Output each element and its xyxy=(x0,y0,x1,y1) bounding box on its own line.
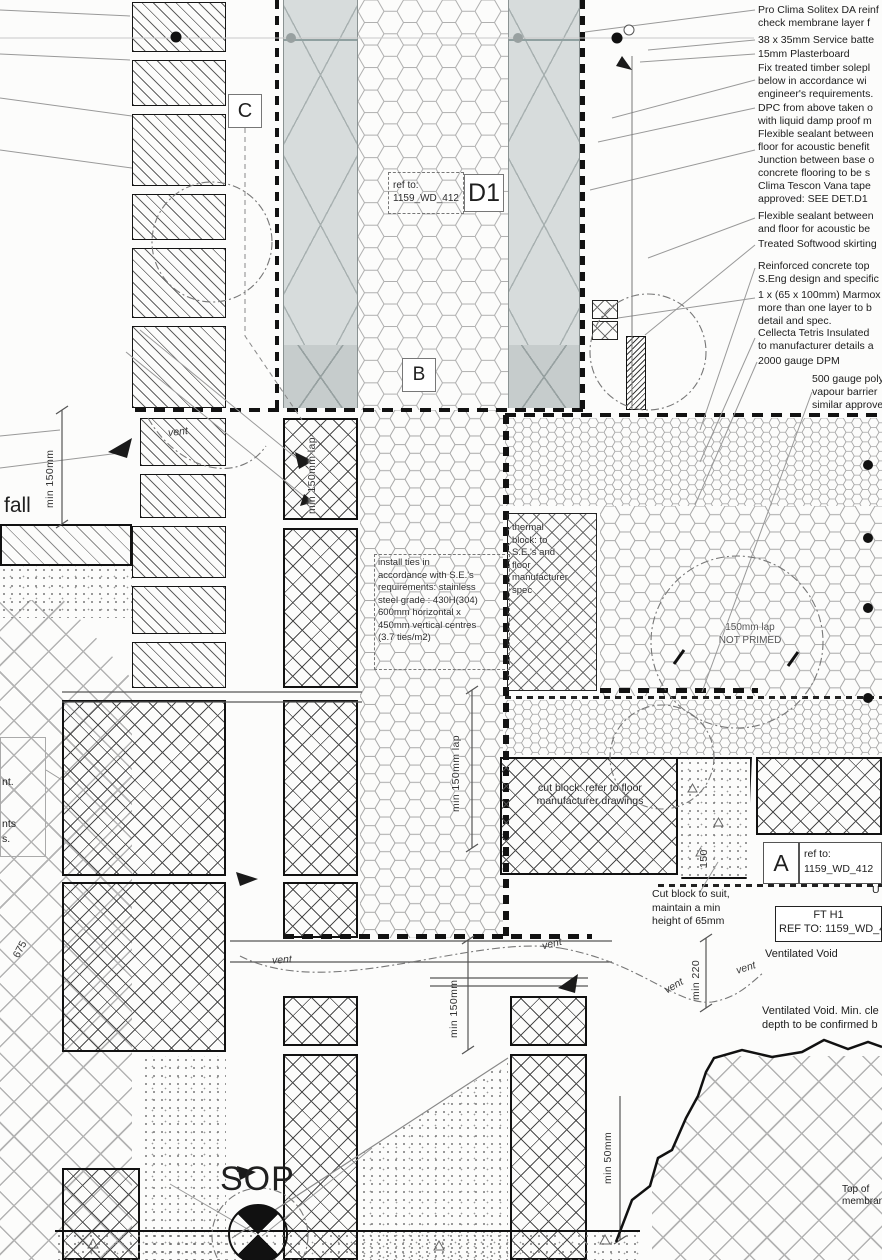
cut-block-note: cut block: refer to floor manufacturer d… xyxy=(508,780,672,810)
brick-course xyxy=(132,526,226,578)
brick-course xyxy=(132,114,226,186)
install-ties-note: install ties in accordance with S.E.'s r… xyxy=(378,557,508,645)
brick-course xyxy=(132,2,226,52)
label-a-text: A xyxy=(773,850,788,877)
annotation-battens: 38 x 35mm Service batte xyxy=(758,34,882,47)
inner-leaf-block xyxy=(283,528,358,688)
floor-beads-hex xyxy=(600,506,882,696)
vent-label: vent xyxy=(735,959,758,977)
label-c-text: C xyxy=(238,100,252,123)
dim-pad-150: 150 xyxy=(698,832,710,868)
detail-label-d1: D1 xyxy=(464,174,504,212)
membrane-dashed-left xyxy=(275,0,279,410)
annotation-marmox: 1 x (65 x 100mm) Marmox more than one la… xyxy=(758,289,882,328)
detail-label-a: A xyxy=(763,842,799,884)
left-note-fragment: nts xyxy=(2,818,32,831)
vent-label: vent xyxy=(167,425,188,439)
brick-course xyxy=(132,248,226,318)
pad-level-dashed xyxy=(658,884,882,887)
sop-label: SOP xyxy=(220,1160,295,1199)
ventilated-void-min-note: Ventilated Void. Min. cle depth to be co… xyxy=(762,1004,882,1032)
dim-min-220: min 220 xyxy=(690,938,702,1000)
subsoil-hatch-right xyxy=(652,1056,882,1260)
vent-label: vent xyxy=(662,976,685,996)
ft-h1-line2: REF TO: 1159_WD_4 xyxy=(779,923,882,935)
left-note-fragment: s. xyxy=(2,833,32,846)
concrete-pad xyxy=(676,757,752,879)
right-edge-fragment: U xyxy=(872,884,882,897)
brick-course xyxy=(132,194,226,240)
floor-screed-hex xyxy=(505,418,882,506)
ventilated-void-label: Ventilated Void xyxy=(765,948,882,962)
foundation-pier xyxy=(283,700,358,876)
floor-top-dashed xyxy=(505,413,882,417)
construction-detail-drawing: C B ref to: 1159_WD_412 D1 A ref to: 115… xyxy=(0,0,882,1260)
blinding-strip xyxy=(55,1230,640,1260)
dpm-lap-dashed xyxy=(600,688,758,693)
annotation-cellecta: Cellecta Tetris Insulated to manufacture… xyxy=(758,327,882,353)
annotation-skirting: Treated Softwood skirting xyxy=(758,238,882,251)
ref-d1-text: ref to: 1159_WD_412 xyxy=(393,180,463,205)
dim-min-150-bottom: min 150mm xyxy=(448,964,460,1038)
marmox-block xyxy=(592,321,618,340)
label-d1-text: D1 xyxy=(468,179,500,208)
annotation-dpc: DPC from above taken o with liquid damp … xyxy=(758,102,882,128)
insulation-hex-mid xyxy=(360,410,503,938)
marmox-block xyxy=(592,300,618,319)
dim-min-50: min 50mm xyxy=(602,1118,614,1184)
detail-label-b: B xyxy=(402,358,436,392)
timber-panel-right-base xyxy=(508,345,580,408)
detail-label-c: C xyxy=(228,94,262,128)
membrane-dashed-right xyxy=(580,0,585,412)
foundation-pier xyxy=(283,882,358,938)
inner-leaf-block xyxy=(283,418,358,520)
floor-strip-hex xyxy=(505,700,882,755)
softwood-skirting xyxy=(626,336,646,410)
ref-a-text: ref to: 1159_WD_412 xyxy=(804,847,882,877)
annotation-concrete-topping: Reinforced concrete top S.Eng design and… xyxy=(758,260,882,286)
dim-min-150-lap-mid: min 150mm lap xyxy=(450,718,462,812)
dpm-dashed xyxy=(505,696,882,699)
brick-course xyxy=(132,642,226,688)
annotation-plasterboard: 15mm Plasterboard xyxy=(758,48,882,61)
brick-course xyxy=(132,326,226,408)
annotation-dpm: 2000 gauge DPM xyxy=(758,355,882,368)
ft-h1-line1: FT H1 xyxy=(775,909,882,921)
brick-course xyxy=(132,60,226,106)
left-note-fragment: nt. xyxy=(2,776,32,789)
lap-not-primed-note: 150mm lap NOT PRIMED xyxy=(690,620,810,648)
dpc-dashed xyxy=(135,408,590,412)
foundation-pier xyxy=(62,882,226,1052)
annotation-sealant-junction: Flexible sealant between floor for acous… xyxy=(758,128,882,206)
foundation-pier xyxy=(62,700,226,876)
brick-course xyxy=(140,474,226,518)
timber-panel-right xyxy=(508,0,580,345)
paving-slab xyxy=(0,524,132,566)
bedding-under-slab xyxy=(0,566,132,618)
timber-panel-left xyxy=(283,0,358,345)
fall-label: fall xyxy=(4,494,31,518)
floor-block-right xyxy=(756,757,882,835)
annotation-sealant-floor: Flexible sealant between and floor for a… xyxy=(758,210,882,236)
vent-label: vent xyxy=(272,953,293,966)
cut-to-suit-note: Cut block to suit, maintain a min height… xyxy=(652,888,752,929)
brick-course xyxy=(132,586,226,634)
foundation-pier xyxy=(283,996,358,1046)
sop-survey-marker xyxy=(228,1204,288,1260)
dim-min-150-lap-block: min 150mm lap xyxy=(306,428,318,514)
foundation-pier xyxy=(510,996,587,1046)
top-of-membrane-note: Top of membrane xyxy=(842,1184,882,1210)
timber-panel-left-base xyxy=(283,345,358,408)
cut-block xyxy=(500,757,678,875)
thermal-block-note: thermal block: to S.E.'s and floor manuf… xyxy=(512,522,594,597)
annotation-solitex: Pro Clima Solitex DA reinf check membran… xyxy=(758,4,882,30)
annotation-vapour-barrier: 500 gauge poly vapour barrier similar ap… xyxy=(812,373,882,412)
dim-min-150-left: min 150mm xyxy=(44,438,56,508)
label-b-text: B xyxy=(413,364,426,386)
annotation-soleplate: Fix treated timber solepl below in accor… xyxy=(758,62,882,101)
